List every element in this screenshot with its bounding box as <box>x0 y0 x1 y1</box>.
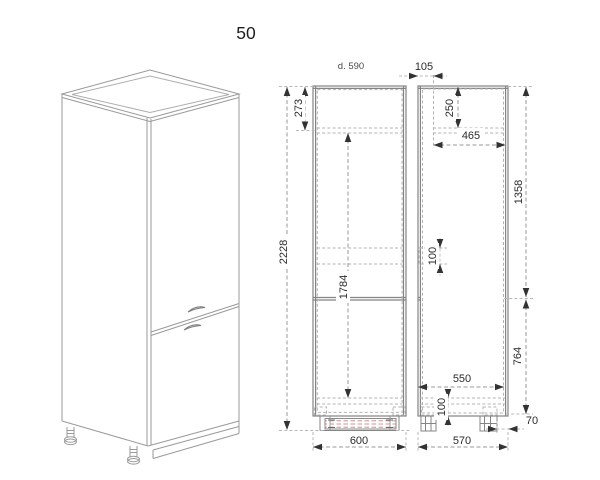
svg-text:2228: 2228 <box>278 240 290 264</box>
svg-text:550: 550 <box>453 373 471 385</box>
dim-overall-depth: 570 <box>418 433 508 447</box>
svg-text:1358: 1358 <box>513 180 525 204</box>
svg-text:1784: 1784 <box>338 275 350 299</box>
dim-top-section-side: 250 <box>442 87 458 128</box>
svg-text:100: 100 <box>436 398 448 416</box>
door-handle-upper <box>188 307 205 312</box>
dim-front-offset: 105 <box>409 61 443 76</box>
dim-back-recess: 70 <box>489 415 538 429</box>
svg-text:465: 465 <box>462 130 480 142</box>
front-door-split <box>313 298 406 301</box>
svg-text:105: 105 <box>415 61 433 73</box>
technical-drawing-page: 50 <box>0 0 600 480</box>
svg-text:764: 764 <box>512 347 524 365</box>
cabinet-foot-left <box>65 427 77 445</box>
door-handle-lower <box>184 325 201 330</box>
plinth-vent-hatch <box>325 416 396 430</box>
svg-text:100: 100 <box>427 247 439 265</box>
svg-text:70: 70 <box>526 415 538 427</box>
drawing-title: 50 <box>236 23 256 43</box>
dim-total-height: 2228 <box>276 87 290 430</box>
isometric-view <box>62 70 239 464</box>
front-view <box>313 86 406 431</box>
depth-note: d. 590 <box>338 61 364 72</box>
dim-mid-detail: 100 <box>425 238 440 276</box>
svg-text:600: 600 <box>350 435 368 447</box>
cabinet-foot-front <box>128 446 140 464</box>
svg-text:273: 273 <box>293 99 305 117</box>
svg-text:250: 250 <box>444 99 456 117</box>
dim-overall-width: 600 <box>313 433 406 447</box>
cabinet-drawing: 50 <box>0 0 600 480</box>
dim-interior-height: 1784 <box>336 133 350 398</box>
dim-lower-zone: 764 <box>510 300 526 415</box>
dim-top-inner-depth: 465 <box>434 128 506 145</box>
dim-top-section-front: 273 <box>291 87 305 131</box>
dim-upper-zone: 1358 <box>511 87 526 297</box>
svg-text:570: 570 <box>453 435 471 447</box>
dim-bottom-inner-depth: 550 <box>418 371 504 387</box>
side-plinth-feet <box>421 416 497 431</box>
